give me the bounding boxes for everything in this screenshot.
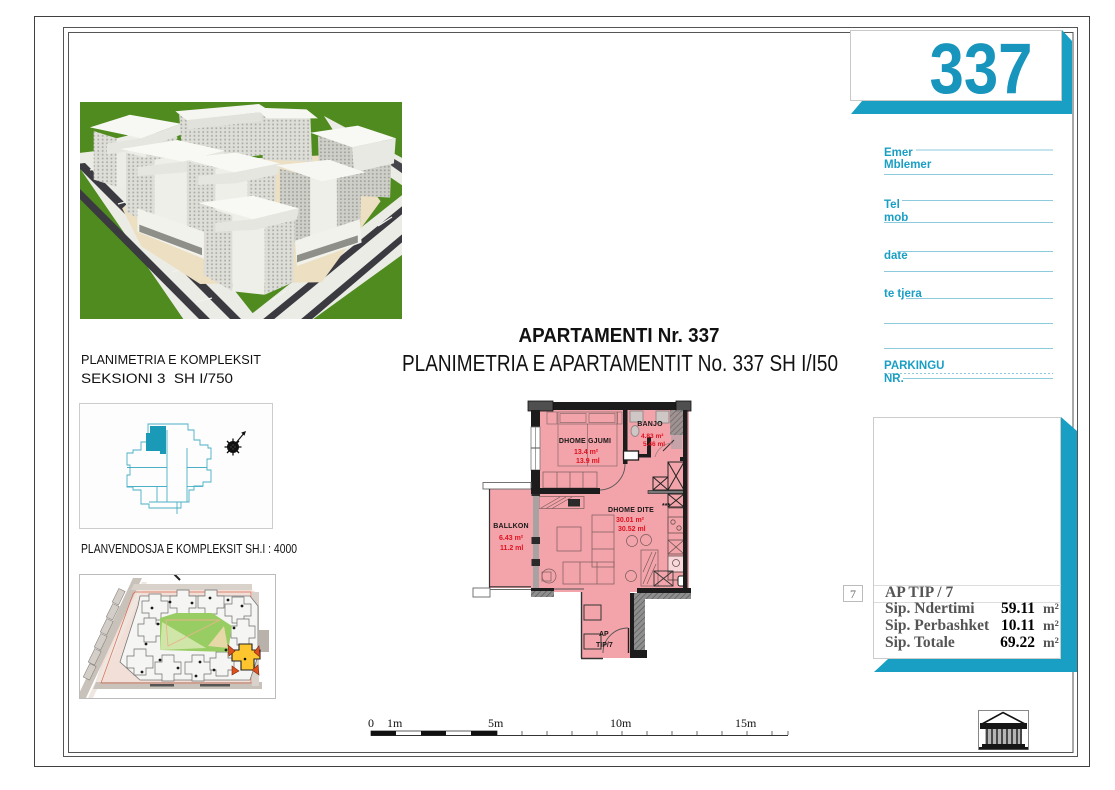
svg-text:Sip. Totale: Sip. Totale: [885, 634, 955, 651]
svg-text:4.83 m²: 4.83 m²: [641, 433, 664, 440]
svg-text:30.01 m²: 30.01 m²: [616, 517, 645, 524]
svg-text:10m: 10m: [610, 716, 632, 730]
svg-text:BANJO: BANJO: [637, 421, 663, 428]
svg-text:Sip. Ndertimi: Sip. Ndertimi: [885, 600, 975, 617]
svg-text:Tel: Tel: [884, 199, 900, 211]
svg-text:TIP/7: TIP/7: [596, 642, 613, 649]
svg-text:PARKINGU: PARKINGU: [884, 360, 944, 372]
svg-text:5.46 ml: 5.46 ml: [643, 441, 665, 448]
svg-text:SEKSIONI 3 SH I/750: SEKSIONI 3 SH I/750: [81, 371, 233, 386]
svg-text:6.43 m²: 6.43 m²: [499, 535, 524, 542]
svg-text:15m: 15m: [735, 716, 757, 730]
svg-text:10.11: 10.11: [1001, 617, 1035, 634]
svg-text:DHOME DITE: DHOME DITE: [608, 507, 654, 514]
svg-text:13.9 ml: 13.9 ml: [576, 458, 600, 465]
svg-text:69.22: 69.22: [1000, 634, 1035, 651]
svg-text:m²: m²: [1043, 619, 1059, 634]
svg-text:PLANIMETRIA E APARTAMENTIT No.: PLANIMETRIA E APARTAMENTIT No. 337 SH I/…: [402, 350, 838, 376]
svg-text:1m: 1m: [387, 716, 403, 730]
svg-text:BALLKON: BALLKON: [493, 523, 529, 530]
svg-text:***: ***: [662, 503, 670, 510]
svg-text:Sip. Perbashket: Sip. Perbashket: [885, 617, 990, 634]
svg-text:13.4 m²: 13.4 m²: [574, 449, 599, 456]
svg-text:5m: 5m: [488, 716, 504, 730]
svg-text:Mblemer: Mblemer: [884, 159, 932, 171]
svg-text:Emer: Emer: [884, 147, 913, 159]
svg-text:11.2 ml: 11.2 ml: [500, 545, 523, 552]
svg-text:AP: AP: [599, 631, 609, 638]
svg-text:337: 337: [930, 30, 1033, 109]
svg-text:NR.: NR.: [884, 373, 904, 385]
svg-text:0: 0: [368, 716, 374, 730]
svg-text:7: 7: [850, 587, 856, 601]
svg-text:30.52 ml: 30.52 ml: [618, 526, 646, 533]
svg-text:PLANVENDOSJA E KOMPLEKSIT SH.I: PLANVENDOSJA E KOMPLEKSIT SH.I : 4000: [81, 541, 297, 556]
svg-text:PLANIMETRIA E KOMPLEKSIT: PLANIMETRIA E KOMPLEKSIT: [81, 352, 261, 367]
svg-text:m²: m²: [1043, 636, 1059, 651]
svg-text:APARTAMENTI Nr. 337: APARTAMENTI Nr. 337: [519, 325, 720, 347]
svg-text:59.11: 59.11: [1001, 600, 1035, 617]
svg-text:AP TIP / 7: AP TIP / 7: [885, 584, 953, 601]
svg-text:m²: m²: [1043, 602, 1059, 617]
svg-text:DHOME GJUMI: DHOME GJUMI: [559, 438, 611, 445]
